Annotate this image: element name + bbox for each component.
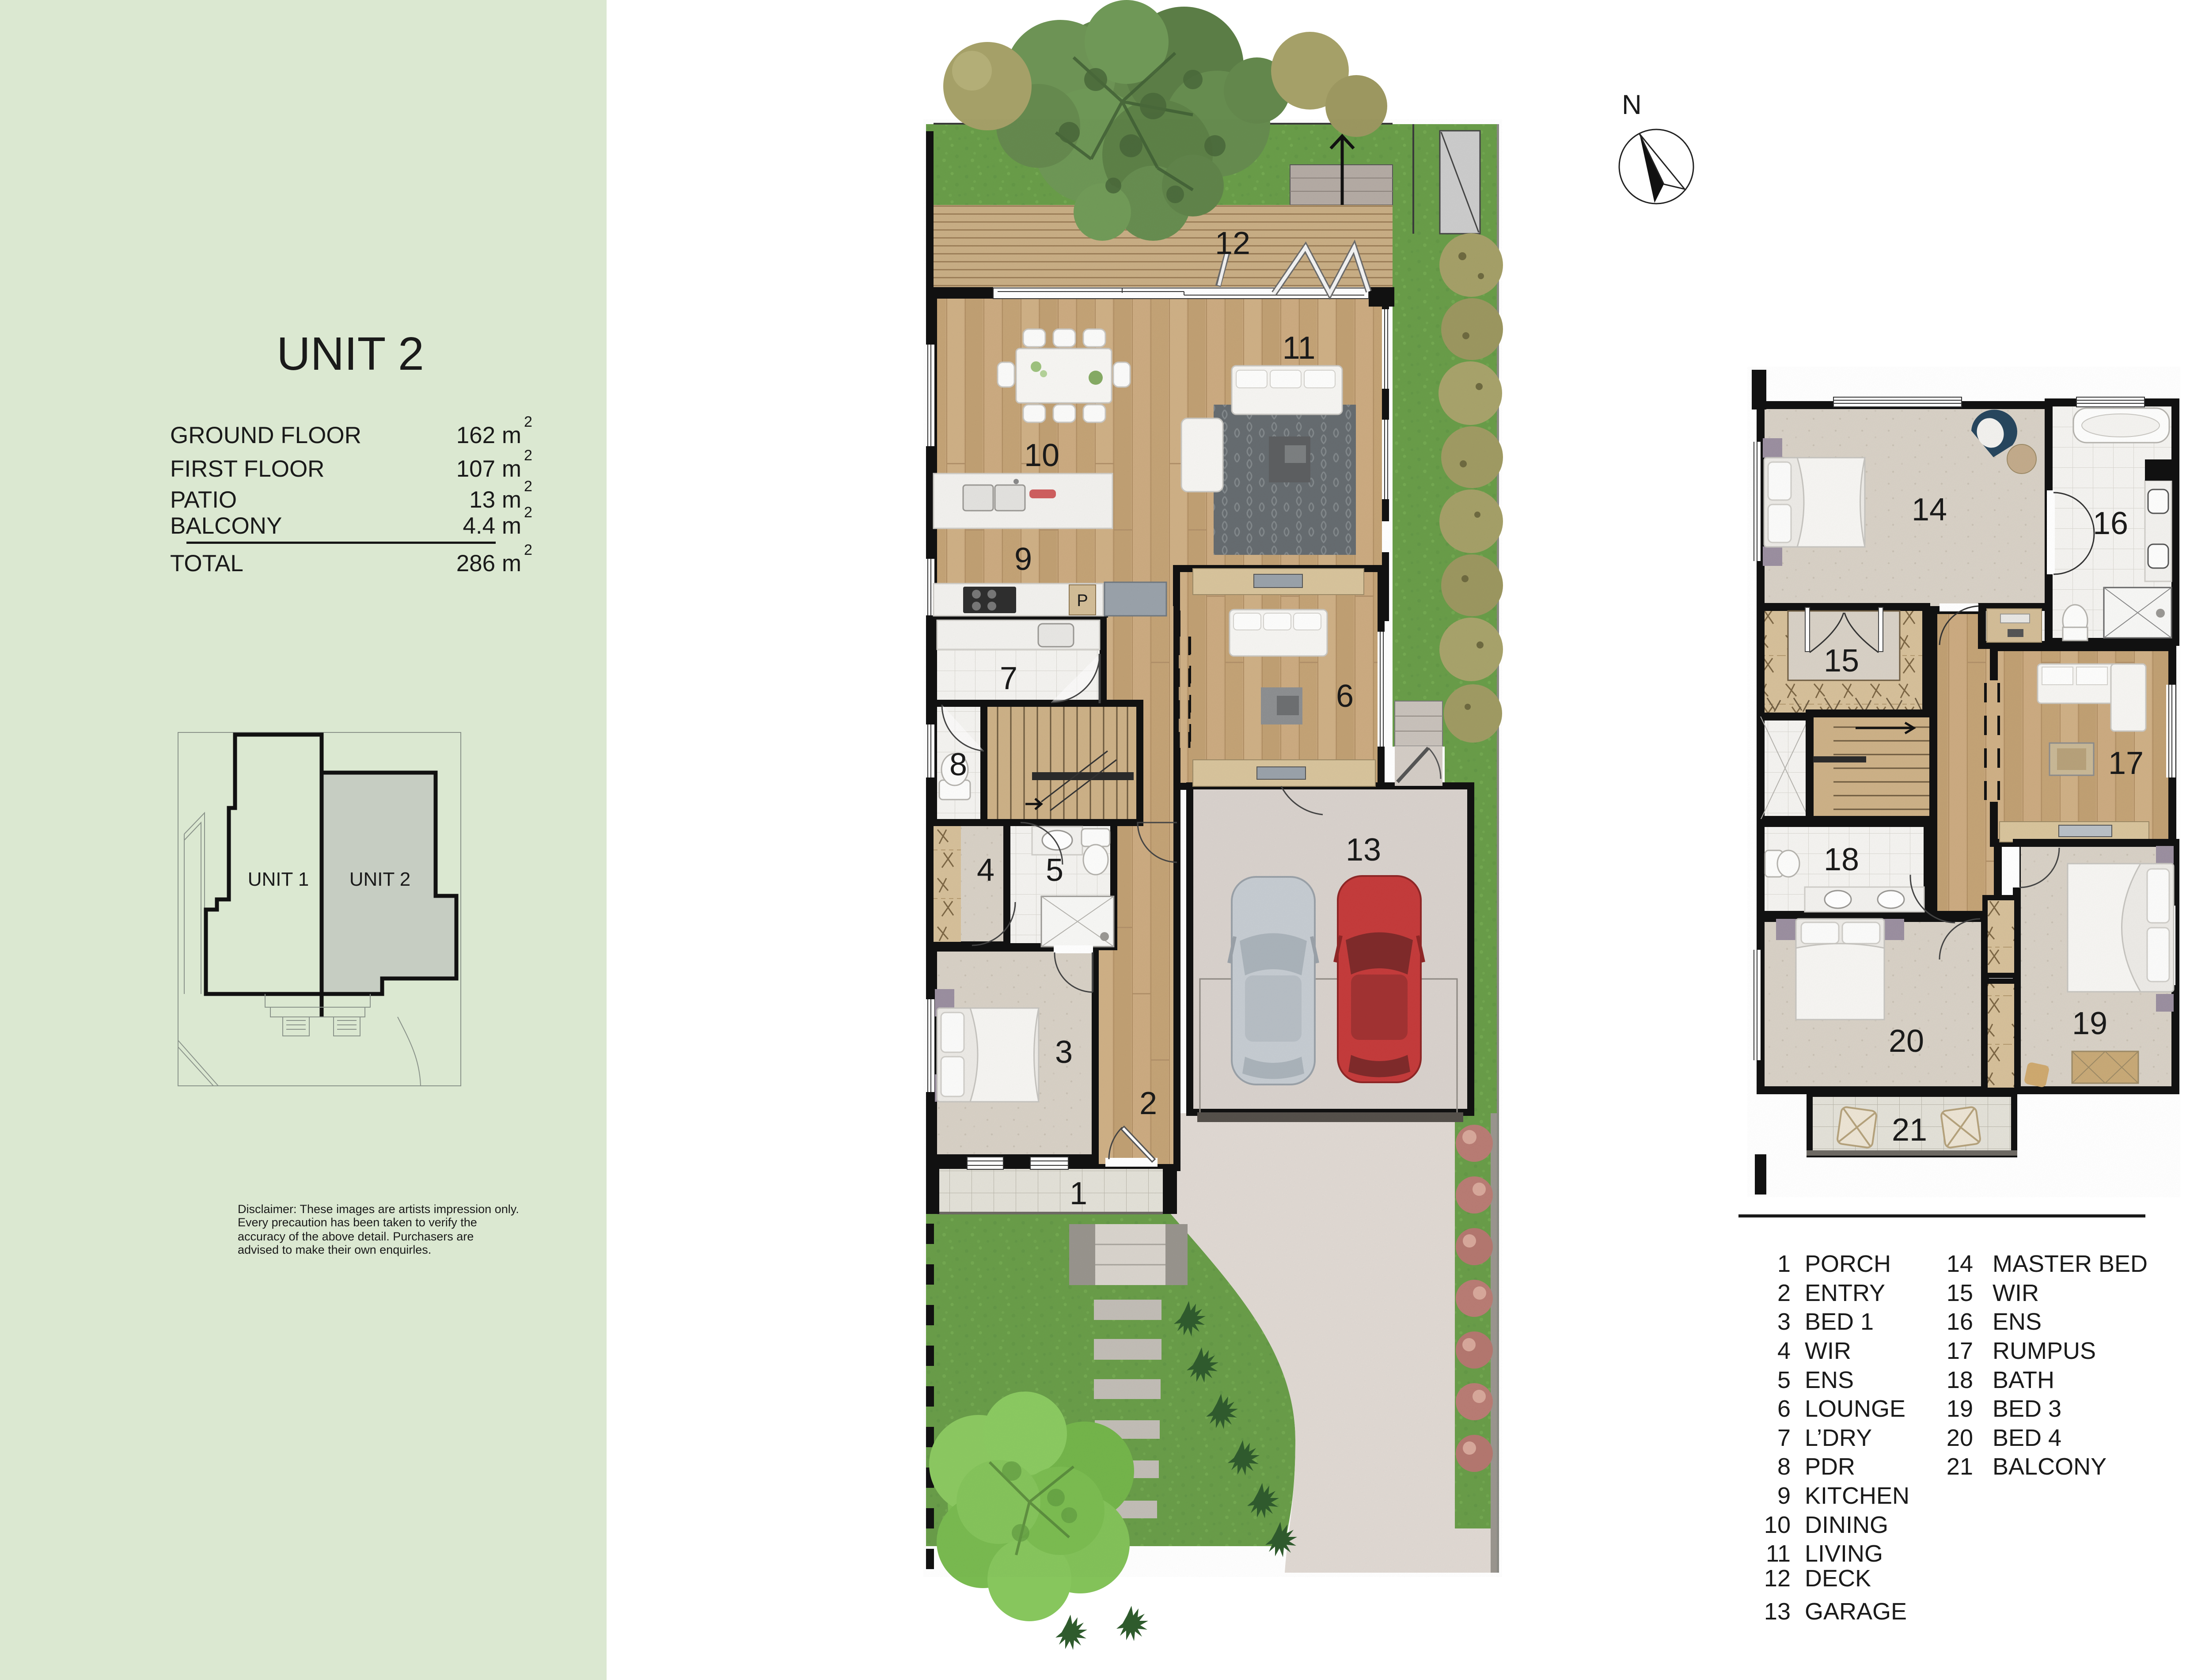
svg-text:KITCHEN: KITCHEN xyxy=(1805,1483,1909,1509)
svg-text:107 m: 107 m xyxy=(456,456,521,482)
svg-text:2: 2 xyxy=(524,504,532,521)
svg-text:2: 2 xyxy=(1777,1280,1791,1306)
svg-text:7: 7 xyxy=(1777,1425,1791,1451)
svg-text:DINING: DINING xyxy=(1805,1512,1888,1538)
svg-text:PDR: PDR xyxy=(1805,1453,1855,1480)
svg-text:GROUND FLOOR: GROUND FLOOR xyxy=(170,422,361,448)
svg-text:13: 13 xyxy=(1764,1598,1791,1625)
svg-text:BED 4: BED 4 xyxy=(1993,1425,2061,1451)
svg-text:12: 12 xyxy=(1764,1565,1791,1592)
svg-text:20: 20 xyxy=(1947,1425,1973,1451)
svg-text:UNIT 2: UNIT 2 xyxy=(349,868,411,890)
svg-text:19: 19 xyxy=(1947,1396,1973,1422)
svg-text:LIVING: LIVING xyxy=(1805,1540,1883,1567)
svg-text:WIR: WIR xyxy=(1805,1338,1851,1364)
svg-text:162 m: 162 m xyxy=(456,422,521,448)
svg-text:2: 2 xyxy=(524,413,532,430)
svg-text:BATH: BATH xyxy=(1993,1367,2054,1393)
svg-text:18: 18 xyxy=(1947,1367,1973,1393)
svg-text:14: 14 xyxy=(1947,1251,1973,1277)
svg-text:BED 3: BED 3 xyxy=(1993,1396,2061,1422)
svg-text:PATIO: PATIO xyxy=(170,487,237,513)
svg-text:2: 2 xyxy=(524,478,532,495)
svg-text:ENS: ENS xyxy=(1993,1308,2042,1335)
svg-text:WIR: WIR xyxy=(1993,1280,2039,1306)
svg-text:BALCONY: BALCONY xyxy=(1993,1453,2107,1480)
svg-text:RUMPUS: RUMPUS xyxy=(1993,1338,2096,1364)
svg-text:ENS: ENS xyxy=(1805,1367,1854,1393)
svg-text:LOUNGE: LOUNGE xyxy=(1805,1396,1905,1422)
svg-text:advised to make their own enqu: advised to make their own enquirles. xyxy=(238,1243,431,1256)
svg-text:16: 16 xyxy=(1947,1308,1973,1335)
svg-text:4: 4 xyxy=(1777,1338,1791,1364)
svg-text:17: 17 xyxy=(1947,1338,1973,1364)
svg-text:1: 1 xyxy=(1777,1251,1791,1277)
svg-text:9: 9 xyxy=(1777,1483,1791,1509)
svg-text:2: 2 xyxy=(524,447,532,464)
svg-text:UNIT 1: UNIT 1 xyxy=(248,868,309,890)
svg-text:13 m: 13 m xyxy=(469,487,521,513)
svg-text:15: 15 xyxy=(1947,1280,1973,1306)
svg-text:MASTER BED: MASTER BED xyxy=(1993,1251,2148,1277)
svg-text:UNIT 2: UNIT 2 xyxy=(277,328,424,380)
svg-text:DECK: DECK xyxy=(1805,1565,1871,1592)
svg-text:21: 21 xyxy=(1947,1453,1973,1480)
svg-text:ENTRY: ENTRY xyxy=(1805,1280,1885,1306)
svg-text:Disclaimer: These images are a: Disclaimer: These images are artists imp… xyxy=(238,1202,519,1216)
svg-text:GARAGE: GARAGE xyxy=(1805,1598,1907,1625)
svg-text:2: 2 xyxy=(524,542,532,558)
svg-text:TOTAL: TOTAL xyxy=(170,550,243,576)
svg-text:FIRST FLOOR: FIRST FLOOR xyxy=(170,456,324,482)
svg-text:3: 3 xyxy=(1777,1308,1791,1335)
svg-text:L’DRY: L’DRY xyxy=(1805,1425,1872,1451)
svg-text:11: 11 xyxy=(1766,1540,1791,1567)
svg-text:286 m: 286 m xyxy=(456,550,521,576)
svg-text:BED 1: BED 1 xyxy=(1805,1308,1874,1335)
svg-text:accuracy of the above detail.: accuracy of the above detail. Purchasers… xyxy=(238,1230,474,1243)
svg-text:8: 8 xyxy=(1777,1453,1791,1480)
svg-text:Every precaution has been take: Every precaution has been taken to verif… xyxy=(238,1216,477,1229)
svg-text:BALCONY: BALCONY xyxy=(170,513,282,539)
svg-text:5: 5 xyxy=(1777,1367,1791,1393)
svg-text:4.4 m: 4.4 m xyxy=(463,513,521,539)
svg-text:PORCH: PORCH xyxy=(1805,1251,1891,1277)
svg-text:N: N xyxy=(1622,90,1642,120)
svg-text:6: 6 xyxy=(1777,1396,1791,1422)
svg-text:10: 10 xyxy=(1764,1512,1791,1538)
